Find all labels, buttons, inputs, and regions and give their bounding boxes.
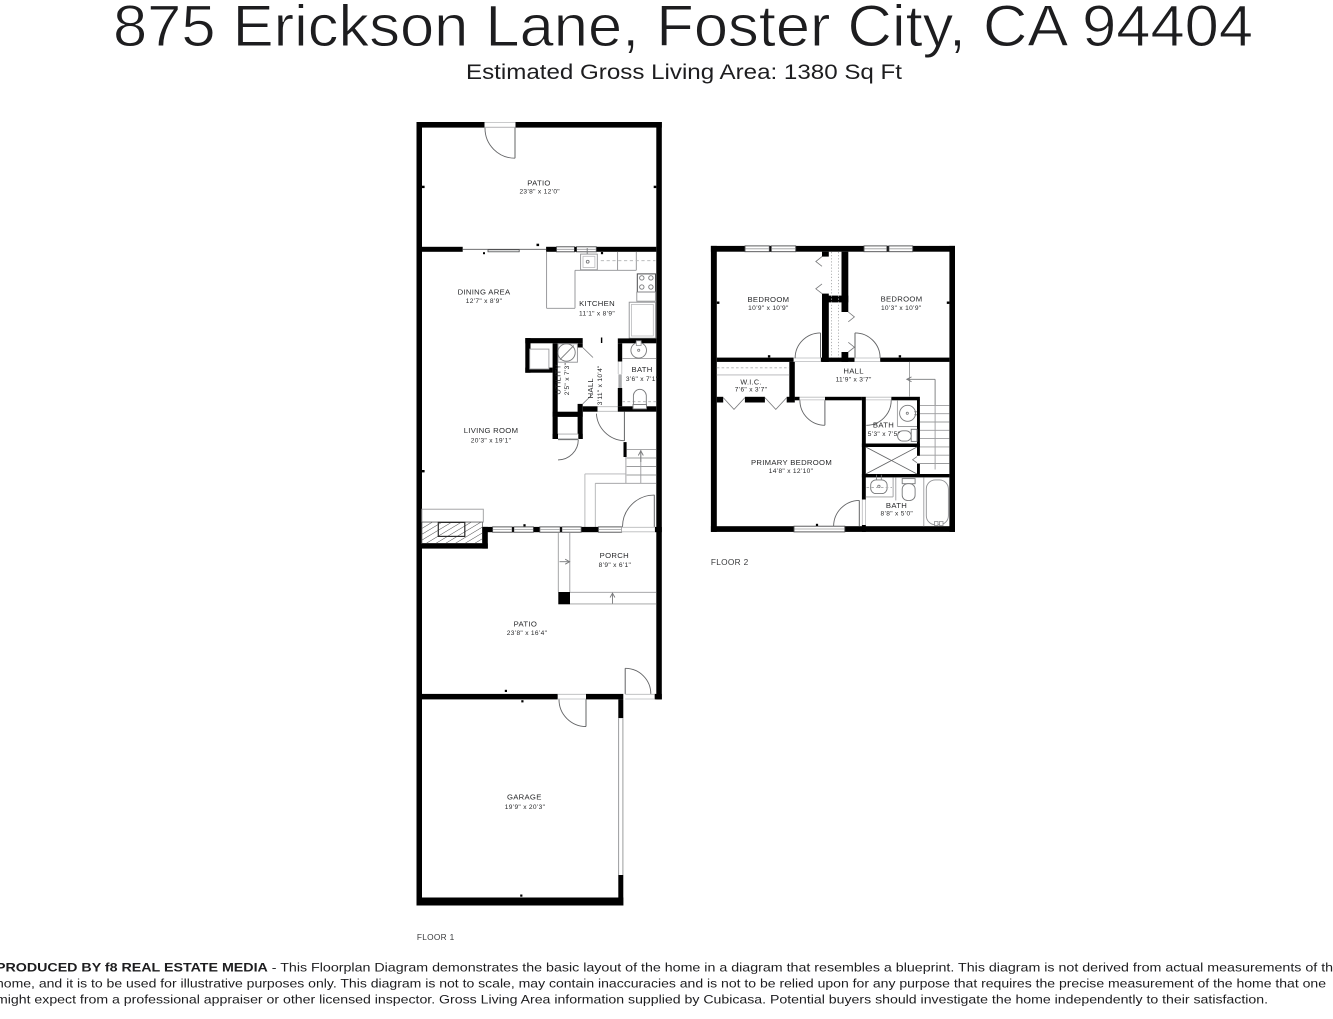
svg-text:GARAGE: GARAGE bbox=[507, 792, 542, 801]
svg-text:10’9" x 10’9": 10’9" x 10’9" bbox=[748, 305, 789, 312]
svg-text:PATIO: PATIO bbox=[527, 179, 550, 188]
svg-text:LIVING ROOM: LIVING ROOM bbox=[464, 426, 519, 435]
svg-text:7’6" x 3’7": 7’6" x 3’7" bbox=[735, 387, 768, 394]
svg-text:BATH: BATH bbox=[886, 501, 907, 510]
svg-text:19’9" x 20’3": 19’9" x 20’3" bbox=[505, 804, 546, 811]
svg-text:2’5" x 7’3": 2’5" x 7’3" bbox=[564, 362, 571, 395]
svg-text:HALL: HALL bbox=[843, 366, 864, 375]
svg-text:11’1" x 8’9": 11’1" x 8’9" bbox=[579, 311, 615, 318]
svg-text:FLOOR 2: FLOOR 2 bbox=[711, 557, 749, 567]
svg-text:11’9" x 3’7": 11’9" x 3’7" bbox=[836, 376, 872, 383]
svg-text:FLOOR 1: FLOOR 1 bbox=[417, 932, 455, 942]
svg-text:PATIO: PATIO bbox=[514, 619, 537, 628]
svg-text:home, and it is to be used for: home, and it is to be used for illustrat… bbox=[0, 977, 1326, 991]
svg-text:PORCH: PORCH bbox=[600, 551, 629, 560]
svg-text:23’8" x 12’0": 23’8" x 12’0" bbox=[519, 189, 560, 196]
svg-text:875 Erickson Lane, Foster City: 875 Erickson Lane, Foster City, CA 94404 bbox=[113, 0, 1253, 59]
svg-text:BATH: BATH bbox=[873, 420, 894, 429]
svg-text:BEDROOM: BEDROOM bbox=[747, 295, 789, 304]
svg-text:14’8" x 12’10": 14’8" x 12’10" bbox=[769, 468, 814, 475]
svg-text:HALL: HALL bbox=[586, 378, 595, 399]
svg-text:BEDROOM: BEDROOM bbox=[881, 295, 923, 304]
svg-text:KITCHEN: KITCHEN bbox=[579, 299, 615, 308]
svg-text:DINING AREA: DINING AREA bbox=[458, 288, 511, 297]
svg-text:W.I.C.: W.I.C. bbox=[740, 378, 761, 387]
svg-text:5’3" x 7’5": 5’3" x 7’5" bbox=[868, 431, 901, 438]
svg-text:20’3" x 19’1": 20’3" x 19’1" bbox=[471, 437, 512, 444]
svg-text:PRIMARY BEDROOM: PRIMARY BEDROOM bbox=[751, 458, 832, 467]
svg-text:PRODUCED BY f8 REAL ESTATE MED: PRODUCED BY f8 REAL ESTATE MEDIA - This … bbox=[0, 961, 1333, 975]
svg-text:23’8" x 16’4": 23’8" x 16’4" bbox=[507, 630, 548, 637]
svg-text:Estimated Gross Living Area: 1: Estimated Gross Living Area: 1380 Sq Ft bbox=[466, 60, 902, 84]
svg-text:3’6" x 7’1": 3’6" x 7’1" bbox=[626, 376, 659, 383]
svg-text:12’7" x 8’9": 12’7" x 8’9" bbox=[466, 298, 503, 305]
svg-text:3’11" x 10’4": 3’11" x 10’4" bbox=[597, 365, 604, 405]
svg-text:8’8" x 5’0": 8’8" x 5’0" bbox=[881, 511, 914, 518]
svg-text:BATH: BATH bbox=[632, 365, 653, 374]
svg-text:10’3" x 10’9": 10’3" x 10’9" bbox=[881, 305, 922, 312]
svg-text:might expect from a profession: might expect from a professional apprais… bbox=[0, 993, 1268, 1007]
svg-text:8’9" x 6’1": 8’9" x 6’1" bbox=[599, 562, 632, 569]
svg-text:UTILITY: UTILITY bbox=[554, 364, 563, 395]
